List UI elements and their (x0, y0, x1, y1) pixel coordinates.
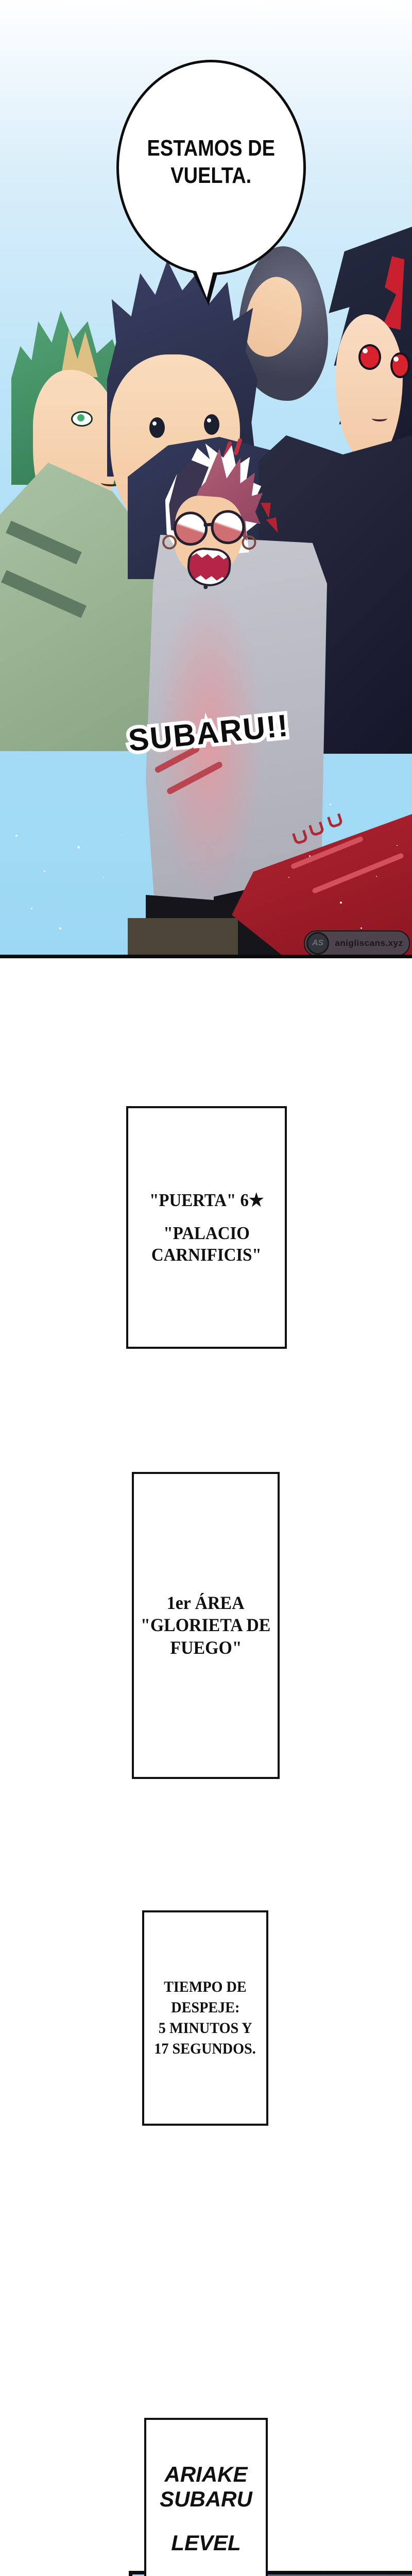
sparkle-dot (121, 835, 122, 836)
chibi-sticker (156, 444, 269, 601)
eye-glint (207, 418, 211, 422)
eye-glint (363, 348, 368, 353)
status-level-values: 51 → 63 (165, 2574, 247, 2576)
sparkle-dot (44, 871, 45, 872)
sparkle-dot (376, 876, 377, 877)
status-name-line1: ARIAKE (164, 2462, 247, 2487)
caption-box-clear-time: TIEMPO DE DESPEJE: 5 MINUTOS Y 17 SEGUND… (142, 1910, 268, 2126)
bubble-text-line1: ESTAMOS DE (147, 135, 275, 162)
girl-mouth (372, 415, 387, 421)
caption-box-level-status: ARIAKE SUBARU LEVEL 51 → 63 (144, 2418, 268, 2576)
time-line1: TIEMPO DE (164, 1977, 247, 1997)
olive-clothing (128, 918, 238, 957)
area-line2: "GLORIETA DE (141, 1614, 270, 1636)
gate-line3: CARNIFICIS" (151, 1244, 262, 1266)
chibi-chin-dot (203, 585, 208, 589)
sparkle-dot (288, 877, 289, 878)
caption-box-gate: "PUERTA" 6★ "PALACIO CARNIFICIS" (126, 1106, 287, 1349)
sparkle-dot (360, 927, 362, 929)
top-panel-bottom-border (0, 955, 412, 958)
time-line2: DESPEJE: (171, 1997, 239, 2018)
girl-eye (358, 344, 381, 370)
time-line4: 17 SEGUNDOS. (154, 2039, 256, 2059)
sash-hook (327, 814, 344, 829)
sparkle-dot (31, 908, 32, 909)
gate-line1: "PUERTA" 6★ (149, 1190, 264, 1211)
sparkle-dot (340, 902, 342, 904)
time-line3: 5 MINUTOS Y (159, 2018, 252, 2039)
chibi-shocked-mouth (186, 547, 232, 588)
area-line1: 1er ÁREA (167, 1592, 245, 1614)
sparkle-dot (309, 855, 311, 857)
left-character-iris (77, 414, 84, 421)
area-line3: FUEGO" (170, 1637, 242, 1659)
sparkle-dot (77, 846, 80, 849)
webtoon-page: ESTAMOS DE VUELTA. SUBARU!! (0, 0, 412, 2576)
watermark-pill: AS anigliscans.xyz (304, 930, 410, 956)
bubble-text-line2: VUELTA. (147, 162, 275, 190)
speech-bubble: ESTAMOS DE VUELTA. (116, 60, 306, 275)
caption-box-area: 1er ÁREA "GLORIETA DE FUEGO" (132, 1472, 280, 1779)
chibi-glasses-bridge (203, 523, 212, 527)
status-name-line2: SUBARU (160, 2487, 252, 2512)
chibi-teeth-bottom (188, 574, 228, 585)
sparkle-dot (103, 877, 104, 878)
sparkle-dot (397, 845, 398, 846)
sparkle-dot (330, 804, 331, 805)
watermark-site-text: anigliscans.xyz (329, 938, 409, 948)
status-level-label: LEVEL (171, 2531, 241, 2555)
center-eye (204, 414, 219, 435)
sparkle-dot (15, 835, 18, 837)
eye-glint (152, 421, 157, 426)
girl-eye (390, 352, 410, 378)
eye-glint (393, 357, 399, 362)
sparkle-dot (59, 927, 61, 929)
top-art-panel: ESTAMOS DE VUELTA. SUBARU!! (0, 0, 412, 958)
center-eye (149, 417, 165, 438)
gate-line2: "PALACIO (163, 1223, 250, 1244)
watermark-logo-icon: AS (306, 932, 329, 955)
